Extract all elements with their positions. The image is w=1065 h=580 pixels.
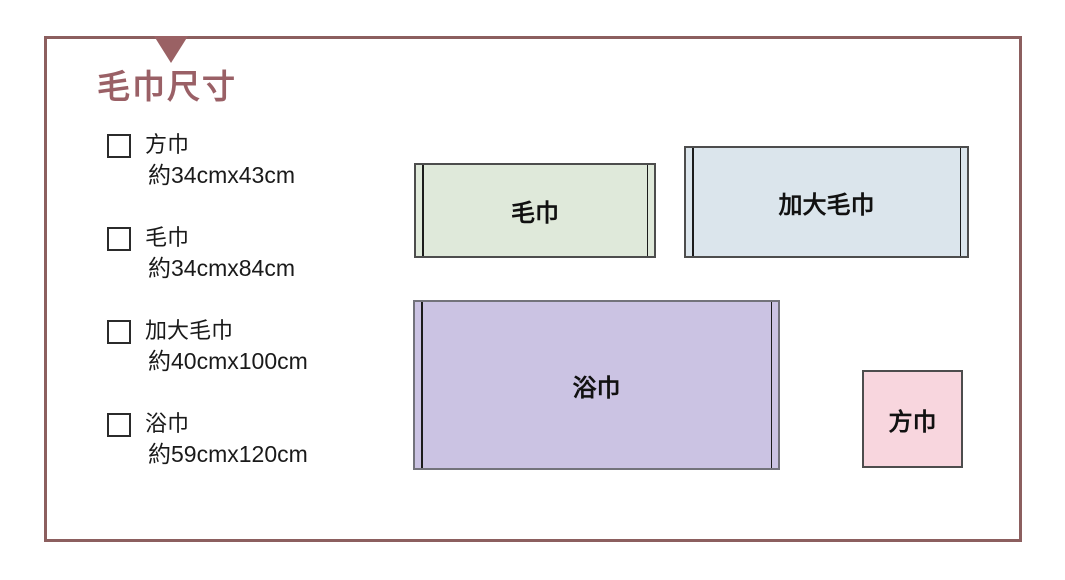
list-item: 方巾 約34cmx43cm [107, 131, 308, 190]
towel-size-label: 約59cmx120cm [107, 440, 308, 469]
checkbox[interactable] [107, 320, 131, 344]
towel-shape-maojin: 毛巾 [414, 163, 656, 258]
hem-line-right [647, 165, 649, 256]
towel-shape-jiada-maojin: 加大毛巾 [684, 146, 969, 258]
towel-name-label: 加大毛巾 [145, 317, 233, 345]
towel-shape-label: 毛巾 [511, 193, 559, 228]
hem-line-left [421, 302, 423, 468]
towel-name-label: 毛巾 [145, 224, 189, 252]
checkbox[interactable] [107, 413, 131, 437]
towel-size-label: 約40cmx100cm [107, 347, 308, 376]
checkbox[interactable] [107, 134, 131, 158]
hem-line-right [960, 148, 962, 256]
down-triangle-icon [154, 36, 188, 63]
towel-shape-fangjin: 方巾 [862, 370, 963, 468]
towel-shape-label: 浴巾 [573, 368, 621, 403]
list-item: 加大毛巾 約40cmx100cm [107, 317, 308, 376]
towel-size-label: 約34cmx84cm [107, 254, 308, 283]
towel-name-label: 浴巾 [145, 410, 189, 438]
page-title: 毛巾尺寸 [97, 67, 237, 107]
towel-size-label: 約34cmx43cm [107, 161, 308, 190]
towel-size-diagram: 毛巾尺寸 方巾 約34cmx43cm 毛巾 約34cmx84cm [0, 0, 1065, 580]
hem-line-right [771, 302, 773, 468]
towel-shape-label: 方巾 [889, 402, 937, 437]
list-item: 毛巾 約34cmx84cm [107, 224, 308, 283]
towel-shape-label: 加大毛巾 [779, 185, 875, 220]
hem-line-left [692, 148, 694, 256]
towel-shape-yujin: 浴巾 [413, 300, 780, 470]
list-item: 浴巾 約59cmx120cm [107, 410, 308, 469]
towel-name-label: 方巾 [145, 131, 189, 159]
checkbox[interactable] [107, 227, 131, 251]
hem-line-left [422, 165, 424, 256]
bordered-panel: 毛巾尺寸 方巾 約34cmx43cm 毛巾 約34cmx84cm [44, 36, 1022, 542]
size-checklist: 方巾 約34cmx43cm 毛巾 約34cmx84cm 加大毛巾 約40cmx1… [107, 131, 308, 503]
